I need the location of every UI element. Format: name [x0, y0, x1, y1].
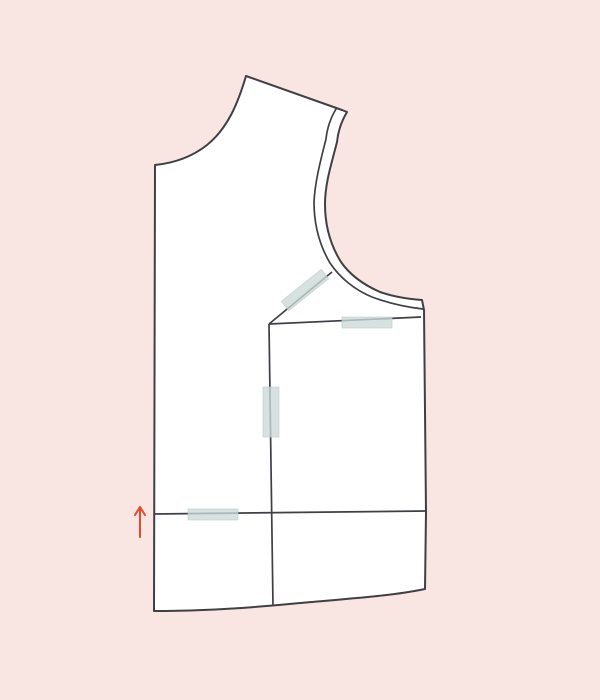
tape-panel-top [342, 317, 392, 328]
sewing-pattern-illustration [0, 0, 600, 700]
tape-hem-horizontal [188, 509, 238, 520]
tape-vertical-middle [263, 387, 279, 437]
illustration-canvas [0, 0, 600, 700]
